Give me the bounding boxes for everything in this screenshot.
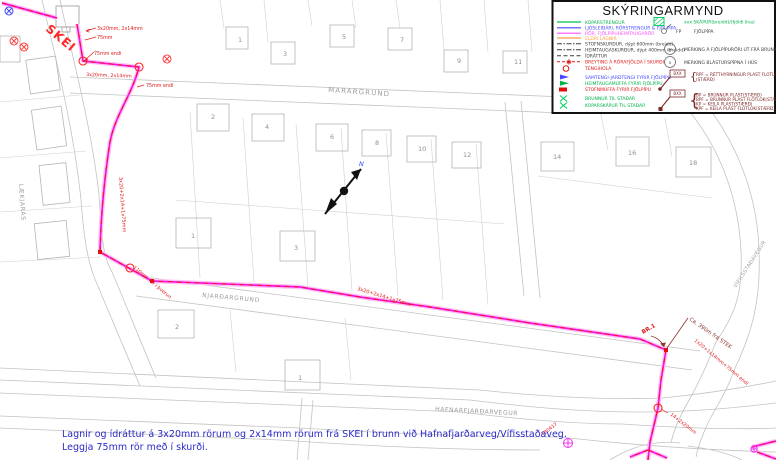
duct-annotation: 1x20+1x14mm+75mm endi — [693, 338, 749, 387]
legend-item: ÍDRÁTTUR — [585, 52, 607, 59]
legend-box: SKÝRINGARMYND ✱ KOPARSTRENGUR LJÓSLEIÐAR… — [553, 1, 776, 113]
street-label-vifilsstadavegur: VÍFILSSTAÐAVEGUR — [732, 239, 768, 289]
legend-item: TENGIHOLA — [584, 66, 612, 72]
plot-number: 3 — [294, 244, 298, 252]
duct-annotation: 75mm endi — [146, 83, 173, 89]
legend-symbol-code: BXX — [673, 71, 681, 76]
plot-number: 6 — [330, 133, 334, 141]
legend-item: FJÖLPÍPA — [694, 28, 714, 35]
plot-number: 10 — [418, 145, 426, 153]
note-line-1: Lagnir og ídráttur á 3x20mm rörum og 2x1… — [62, 429, 567, 440]
street-labels: MARARGRUND NJARÐARGRUND HAFNARFJARÐARVEG… — [17, 86, 768, 417]
br1-label: BR.1 — [641, 323, 657, 336]
star-icon: ✱ — [566, 58, 572, 66]
north-label: N — [359, 160, 364, 168]
plot-number: 4 — [265, 123, 269, 131]
muffa-icon — [664, 348, 668, 352]
legend-item: RÖR, FJÖLPÍPUHEIMTAUGARÖR — [585, 30, 654, 37]
plot-number: 14 — [553, 153, 561, 161]
legend-item: MERKING BLÁSTURSPÍPNA Í HÚS — [684, 59, 757, 66]
note-line-2: Leggja 75mm rör með í skurði. — [62, 442, 208, 453]
plot-number: 2 — [175, 323, 179, 331]
plot-number: 11 — [514, 58, 522, 66]
skei-label: SKEI — [43, 22, 79, 55]
legend-item: xxx SKÁPUR(breidd)/(fjöldi lína) — [684, 19, 755, 26]
duct-annotation: 14+2x20mm — [669, 412, 698, 436]
legend-symbol-code: 4P — [668, 47, 673, 52]
plot-number: 16 — [628, 149, 636, 157]
legend-item: MERKING Á FJÖLPÍPURÖRI ÚT FRÁ BRUNNI — [684, 46, 776, 53]
legend-symbol-code: FP — [676, 29, 682, 35]
legend-item: HEIMTAUGAMÚFFA FYRIR FJÖLPÍPU — [585, 80, 663, 87]
duct-annotation: 3x20+2x14+1x75mm — [117, 177, 127, 233]
north-arrow: N — [325, 160, 364, 214]
duct-annotation: 3x20mm, 2x14mm — [97, 26, 143, 32]
legend-item: BRUNNUR TIL STAÐAR — [585, 96, 635, 102]
plot-number: 3 — [283, 50, 287, 58]
legend-symbol-code: BXX — [673, 91, 681, 96]
legend-item: STOFNSKURÐUR, dýpt 600mm (breidd) — [585, 40, 673, 47]
plot-number: 8 — [375, 139, 379, 147]
manhole-cross-icon — [5, 7, 13, 15]
site-plan-svg: 1 3 5 7 9 11 2 4 6 8 10 12 14 16 18 1 3 … — [0, 0, 776, 460]
muffa-icon — [98, 250, 102, 254]
plot-number: 1 — [298, 374, 302, 382]
site-plan-drawing: 1 3 5 7 9 11 2 4 6 8 10 12 14 16 18 1 3 … — [0, 0, 776, 460]
legend-item: STOFNMÚFFA FYRIR FJÖLPÍPU — [585, 86, 651, 93]
plot-number: 18 — [689, 159, 697, 167]
plot-number: 2 — [211, 113, 215, 121]
plot-number: 5 — [342, 33, 346, 41]
duct-annotation: 75mm endi — [94, 51, 121, 57]
distance-annotation: Ca. 390m frá STEK — [688, 316, 734, 351]
legend-item: BREYTING Á RÖRAFJÖLDA Í SKURÐI — [585, 58, 664, 65]
legend-item: SAMTENGI-JARÐTENGI FYRIR FJÖLPÍPU — [585, 74, 671, 81]
plot-number: 9 — [457, 57, 461, 65]
duct-annotation: 75mm — [97, 35, 113, 41]
legend-item: KOPARSTRENGUR — [585, 20, 625, 26]
plot-number: 1 — [191, 232, 195, 240]
street-label-laekjaras: LÆKJARÁS — [17, 184, 27, 222]
legend-item: KPF = KEILA PLAST FLOTLOK(STÆRÐ) — [696, 106, 775, 111]
legend-item: ELDRI LAGNIR — [585, 36, 617, 42]
plot-number: 12 — [463, 151, 471, 159]
duct-annotation: 3x20mm, 2x14mm — [86, 72, 132, 80]
street-label-marargrund: MARARGRUND — [328, 86, 391, 98]
legend-title: SKÝRINGARMYND — [602, 3, 723, 18]
street-label-hafnarfjardarvegur: HAFNARFJARÐARVEGUR — [435, 406, 519, 417]
street-label-njardargrund: NJARÐARGRUND — [202, 292, 260, 304]
plot-number: 7 — [400, 36, 404, 44]
plot-number: 1 — [238, 36, 242, 44]
legend-item: KOPARSKÁPUR TIL STAÐAR — [585, 102, 645, 109]
legend-item: (STÆRÐ) — [696, 77, 715, 82]
